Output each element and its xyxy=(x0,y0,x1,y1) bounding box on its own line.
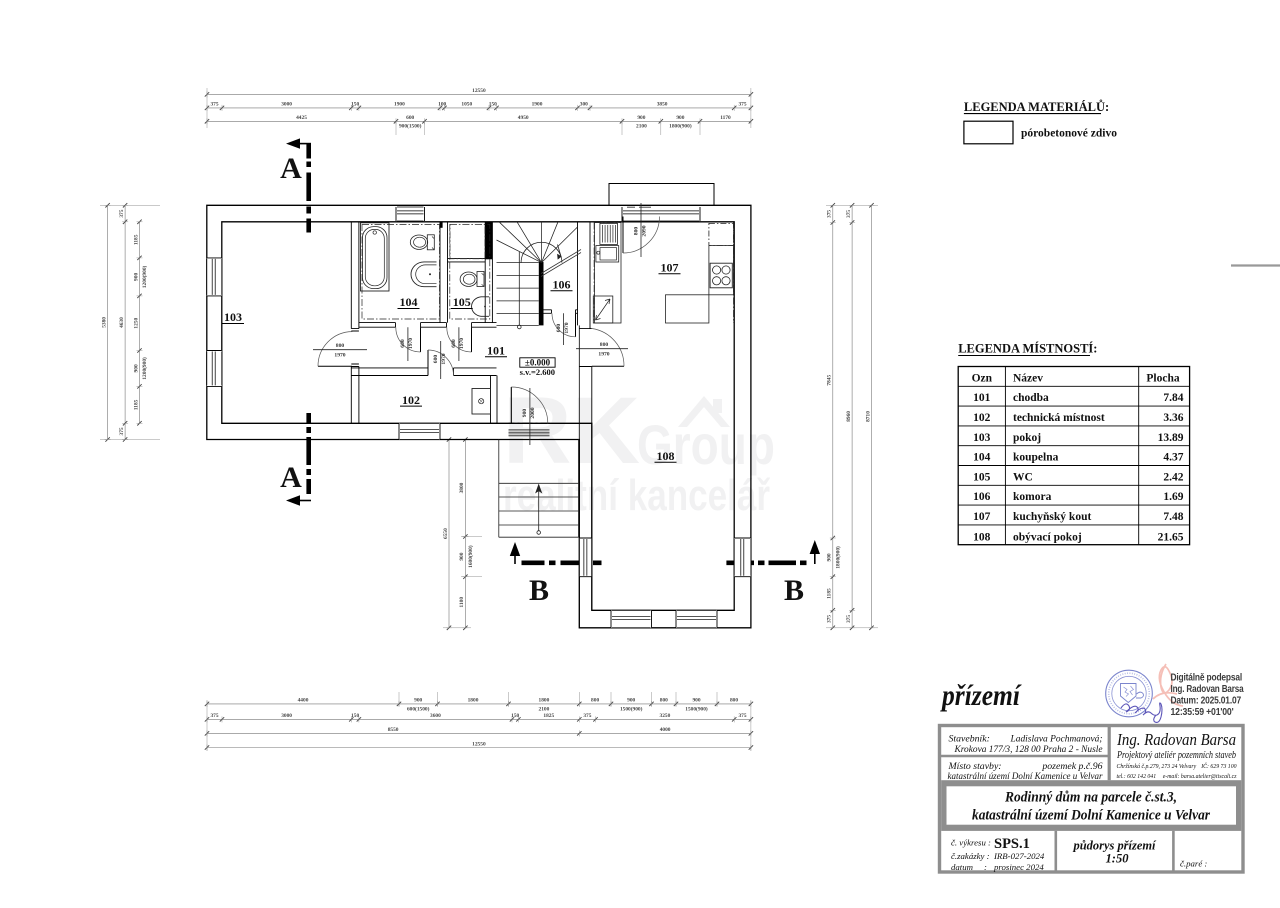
svg-text:realitní kancelář: realitní kancelář xyxy=(503,471,771,520)
svg-text:375: 375 xyxy=(738,102,746,108)
svg-text:375: 375 xyxy=(738,713,746,719)
svg-text:900: 900 xyxy=(627,698,635,704)
svg-text:375: 375 xyxy=(827,615,833,623)
svg-text:150: 150 xyxy=(511,713,519,719)
svg-text:8960: 8960 xyxy=(846,411,852,422)
svg-text:4950: 4950 xyxy=(518,115,529,121)
svg-text:datum :: datum : xyxy=(951,862,987,872)
svg-text:koupelna: koupelna xyxy=(1013,452,1059,464)
svg-text:Group: Group xyxy=(637,413,775,476)
svg-text:4000: 4000 xyxy=(660,727,671,733)
svg-text:900: 900 xyxy=(827,553,833,561)
svg-text:150: 150 xyxy=(351,713,359,719)
svg-text:150: 150 xyxy=(489,102,497,108)
svg-text:3000: 3000 xyxy=(281,102,292,108)
svg-text:107: 107 xyxy=(661,261,679,275)
svg-text:600: 600 xyxy=(406,115,414,121)
svg-text:1800(900): 1800(900) xyxy=(834,546,841,569)
svg-text:6550: 6550 xyxy=(443,528,449,539)
svg-text:katastrální území Dolní Kameni: katastrální území Dolní Kamenice u Velva… xyxy=(948,771,1103,782)
svg-text:375: 375 xyxy=(583,713,591,719)
svg-text:102: 102 xyxy=(973,412,991,424)
svg-text:375: 375 xyxy=(119,209,125,217)
svg-text:108: 108 xyxy=(657,449,675,463)
svg-text:LEGENDA MÍSTNOSTÍ:: LEGENDA MÍSTNOSTÍ: xyxy=(958,342,1097,356)
svg-text:800: 800 xyxy=(600,342,609,348)
svg-text:e-mail: barsa.atelier@tiscali.: e-mail: barsa.atelier@tiscali.cz xyxy=(1163,774,1238,780)
svg-text:1970: 1970 xyxy=(459,338,465,349)
svg-text:Ing. Radovan Barsa: Ing. Radovan Barsa xyxy=(1116,730,1236,749)
svg-text:tel.: 602 142 041: tel.: 602 142 041 xyxy=(1117,773,1157,780)
svg-text:105: 105 xyxy=(453,295,471,309)
svg-text:1970: 1970 xyxy=(408,338,414,349)
svg-text:375: 375 xyxy=(210,102,218,108)
svg-text:1200(900): 1200(900) xyxy=(141,357,148,380)
svg-text:1500(900): 1500(900) xyxy=(685,705,708,712)
svg-text:375: 375 xyxy=(119,427,125,435)
svg-text:1970: 1970 xyxy=(334,353,345,359)
svg-text:technická místnost: technická místnost xyxy=(1013,412,1105,424)
svg-text:1970: 1970 xyxy=(598,352,609,358)
svg-text:12550: 12550 xyxy=(472,88,486,94)
svg-text:13.89: 13.89 xyxy=(1158,432,1184,444)
svg-text:Stavebník:: Stavebník: xyxy=(949,734,990,745)
svg-text:prosinec 2024: prosinec 2024 xyxy=(993,862,1044,872)
svg-text:300: 300 xyxy=(580,102,588,108)
svg-text:900: 900 xyxy=(522,409,528,418)
svg-text:kuchyňský kout: kuchyňský kout xyxy=(1013,511,1091,523)
svg-text:2100: 2100 xyxy=(636,124,647,130)
svg-text:1:50: 1:50 xyxy=(1106,852,1130,866)
svg-text:102: 102 xyxy=(402,393,420,407)
svg-text:1.69: 1.69 xyxy=(1163,491,1183,503)
svg-text:12:35:59 +01'00': 12:35:59 +01'00' xyxy=(1171,707,1234,718)
svg-text:SPS.1: SPS.1 xyxy=(994,836,1030,852)
svg-text:375: 375 xyxy=(210,713,218,719)
svg-text:katastrální území Dolní Kameni: katastrální území Dolní Kamenice u Velva… xyxy=(972,808,1210,824)
svg-text:Ing. Radovan Barsa: Ing. Radovan Barsa xyxy=(1171,684,1245,695)
svg-text:č.zakázky :: č.zakázky : xyxy=(951,851,990,861)
svg-text:1600(900): 1600(900) xyxy=(467,545,474,568)
svg-text:Rodinný dům na parcele č.st.3,: Rodinný dům na parcele č.st.3, xyxy=(1004,790,1177,806)
svg-text:4400: 4400 xyxy=(298,698,309,704)
svg-text:900: 900 xyxy=(459,552,465,560)
svg-text:900: 900 xyxy=(676,115,684,121)
svg-text:3250: 3250 xyxy=(660,713,671,719)
svg-text:komora: komora xyxy=(1013,491,1052,503)
svg-text:600(1500): 600(1500) xyxy=(407,705,430,712)
svg-text:Chržínská č.p.279, 273 24 Velv: Chržínská č.p.279, 273 24 Velvary xyxy=(1117,763,1197,770)
svg-text:1825: 1825 xyxy=(543,713,554,719)
svg-text:4425: 4425 xyxy=(296,115,307,121)
svg-text:1900: 1900 xyxy=(394,102,405,108)
svg-text:2100: 2100 xyxy=(539,706,550,712)
svg-text:375: 375 xyxy=(827,210,833,218)
svg-text:obývací pokoj: obývací pokoj xyxy=(1013,531,1082,543)
svg-text:B: B xyxy=(529,574,549,607)
svg-text:3000: 3000 xyxy=(281,713,292,719)
svg-text:2000: 2000 xyxy=(530,407,536,418)
svg-text:s.v.=2.600: s.v.=2.600 xyxy=(520,367,555,377)
svg-text:Plocha: Plocha xyxy=(1146,372,1179,384)
svg-text:21.65: 21.65 xyxy=(1158,531,1184,543)
svg-text:107: 107 xyxy=(973,511,991,523)
svg-text:3850: 3850 xyxy=(657,102,668,108)
svg-text:1970: 1970 xyxy=(564,322,570,333)
svg-text:7845: 7845 xyxy=(827,375,833,386)
svg-text:106: 106 xyxy=(973,491,991,503)
svg-text:2.42: 2.42 xyxy=(1163,471,1183,483)
svg-text:375: 375 xyxy=(846,615,852,623)
svg-text:3800: 3800 xyxy=(459,482,465,493)
svg-text:IRB-027-2024: IRB-027-2024 xyxy=(993,851,1045,861)
svg-text:1170: 1170 xyxy=(720,115,731,121)
svg-text:900: 900 xyxy=(133,273,139,281)
svg-text:101: 101 xyxy=(973,392,991,404)
svg-text:A: A xyxy=(280,461,302,494)
svg-text:1185: 1185 xyxy=(133,234,139,245)
svg-text:WC: WC xyxy=(1013,471,1033,483)
svg-text:chodba: chodba xyxy=(1013,392,1049,404)
svg-text:600: 600 xyxy=(400,339,406,348)
svg-text:pórobetonové zdivo: pórobetonové zdivo xyxy=(1021,127,1117,139)
svg-text:103: 103 xyxy=(224,310,242,324)
svg-text:1970: 1970 xyxy=(441,353,447,364)
svg-text:B: B xyxy=(784,574,804,607)
svg-text:800: 800 xyxy=(633,227,639,236)
svg-text:1185: 1185 xyxy=(133,399,139,410)
svg-text:800: 800 xyxy=(660,698,668,704)
svg-text:375: 375 xyxy=(846,210,852,218)
svg-text:900: 900 xyxy=(133,364,139,372)
svg-text:IČ: 629 73 100: IČ: 629 73 100 xyxy=(1200,762,1236,770)
svg-text:900: 900 xyxy=(414,698,422,704)
svg-text:600: 600 xyxy=(451,339,457,348)
svg-text:104: 104 xyxy=(400,295,418,309)
svg-text:č. výkresu :: č. výkresu : xyxy=(951,838,991,848)
svg-text:3600: 3600 xyxy=(430,713,441,719)
svg-text:Název: Název xyxy=(1013,372,1043,384)
svg-text:1800(900): 1800(900) xyxy=(669,123,692,130)
svg-text:Ozn: Ozn xyxy=(972,372,993,384)
svg-text:pokoj: pokoj xyxy=(1013,432,1041,444)
svg-text:A: A xyxy=(280,152,302,185)
svg-text:Ladislava Pochmanová;: Ladislava Pochmanová; xyxy=(1010,734,1103,745)
svg-text:900: 900 xyxy=(692,698,700,704)
svg-text:Digitálně podepsal: Digitálně podepsal xyxy=(1171,673,1243,684)
svg-text:900(1500): 900(1500) xyxy=(399,123,422,130)
svg-text:800: 800 xyxy=(336,343,345,349)
svg-text:1100: 1100 xyxy=(459,597,465,608)
svg-text:1500(900): 1500(900) xyxy=(620,705,643,712)
svg-text:1050: 1050 xyxy=(461,102,472,108)
svg-text:105: 105 xyxy=(973,471,991,483)
svg-text:100: 100 xyxy=(438,102,446,108)
svg-text:7.48: 7.48 xyxy=(1163,511,1183,523)
svg-text:800: 800 xyxy=(730,698,738,704)
svg-text:8550: 8550 xyxy=(388,727,399,733)
svg-text:600: 600 xyxy=(433,355,439,364)
svg-text:12550: 12550 xyxy=(472,741,486,747)
svg-text:2090: 2090 xyxy=(641,225,647,236)
svg-text:104: 104 xyxy=(973,452,991,464)
svg-text:150: 150 xyxy=(351,102,359,108)
svg-text:Krokova 177/3, 128 00 Praha 2: Krokova 177/3, 128 00 Praha 2 - Nusle xyxy=(954,744,1104,755)
svg-text:4.37: 4.37 xyxy=(1163,452,1183,464)
svg-text:1800: 1800 xyxy=(539,698,550,704)
svg-text:7.84: 7.84 xyxy=(1163,392,1183,404)
svg-text:106: 106 xyxy=(553,278,571,292)
svg-text:1185: 1185 xyxy=(827,588,833,599)
svg-text:8710: 8710 xyxy=(865,411,871,422)
svg-text:101: 101 xyxy=(487,344,505,358)
svg-text:Datum: 2025.01.07: Datum: 2025.01.07 xyxy=(1171,696,1242,707)
svg-text:800: 800 xyxy=(591,698,599,704)
svg-text:1900: 1900 xyxy=(532,102,543,108)
svg-text:4630: 4630 xyxy=(119,317,125,328)
svg-text:1200(900): 1200(900) xyxy=(141,265,148,288)
svg-text:103: 103 xyxy=(973,432,991,444)
svg-text:LEGENDA MATERIÁLŮ:: LEGENDA MATERIÁLŮ: xyxy=(964,99,1109,114)
svg-text:č.paré :: č.paré : xyxy=(1180,859,1207,869)
svg-text:půdorys přízemí: půdorys přízemí xyxy=(1073,838,1157,853)
svg-text:600: 600 xyxy=(556,324,562,333)
svg-text:900: 900 xyxy=(637,115,645,121)
svg-text:1250: 1250 xyxy=(133,318,139,329)
svg-text:3.36: 3.36 xyxy=(1163,412,1183,424)
svg-text:108: 108 xyxy=(973,531,991,543)
svg-text:5380: 5380 xyxy=(101,317,107,328)
svg-text:1800: 1800 xyxy=(468,698,479,704)
svg-text:přízemí: přízemí xyxy=(939,679,1022,712)
svg-text:Projektový ateliér pozemních s: Projektový ateliér pozemních staveb xyxy=(1116,750,1236,761)
